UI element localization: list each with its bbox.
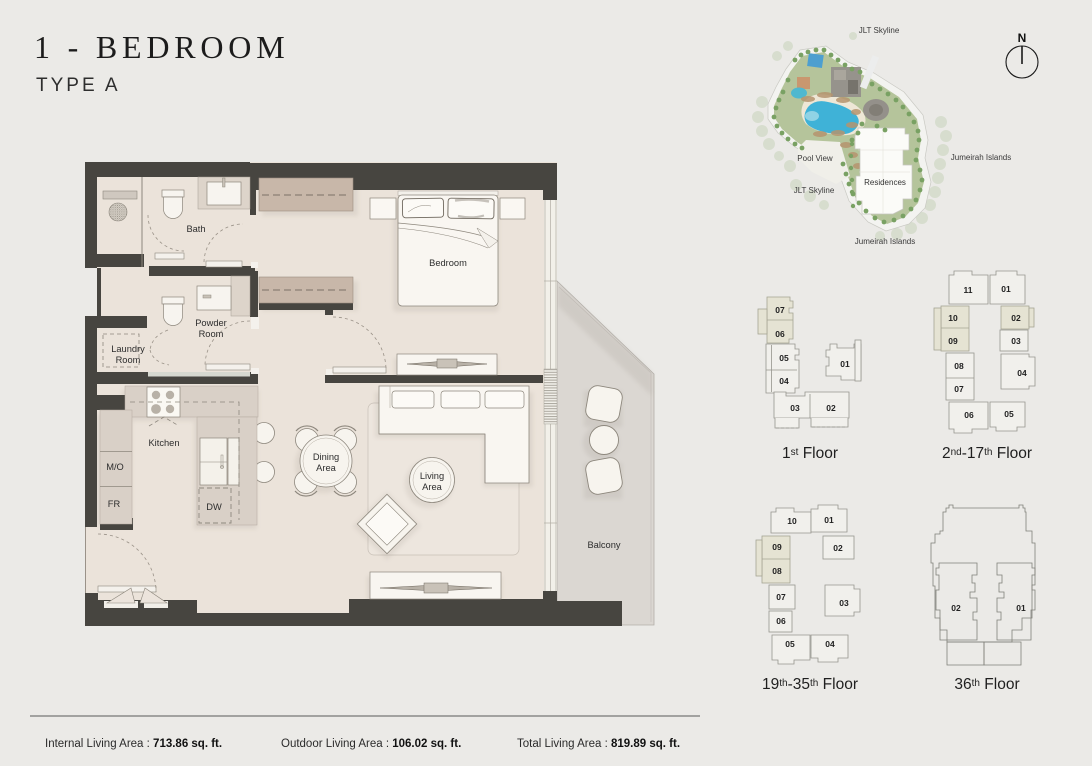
svg-text:10: 10 [787,516,797,526]
svg-text:03: 03 [839,598,849,608]
svg-text:05: 05 [779,353,789,363]
svg-text:Outdoor Living Area : 106.02 s: Outdoor Living Area : 106.02 sq. ft. [281,738,461,750]
svg-text:Powder: Powder [195,318,227,328]
svg-text:06: 06 [776,616,786,626]
svg-text:04: 04 [779,376,789,386]
svg-text:Pool View: Pool View [797,154,833,163]
svg-text:DW: DW [206,502,222,512]
svg-text:02: 02 [951,603,961,613]
svg-text:04: 04 [825,639,835,649]
svg-text:01: 01 [840,359,850,369]
svg-text:19th-35th Floor: 19th-35th Floor [762,676,858,693]
svg-text:Room: Room [199,329,224,339]
svg-text:07: 07 [954,384,964,394]
svg-text:07: 07 [776,592,786,602]
svg-text:01: 01 [1016,603,1026,613]
svg-text:09: 09 [772,542,782,552]
svg-text:09: 09 [948,336,958,346]
svg-text:02: 02 [1011,313,1021,323]
svg-text:Area: Area [422,482,442,492]
svg-text:06: 06 [775,329,785,339]
svg-text:Dining: Dining [313,452,339,462]
svg-text:TYPE A: TYPE A [36,75,121,96]
svg-text:Residences: Residences [864,178,906,187]
svg-text:08: 08 [954,361,964,371]
svg-text:Jumeirah Islands: Jumeirah Islands [855,237,915,246]
svg-text:03: 03 [1011,336,1021,346]
svg-text:07: 07 [775,305,785,315]
svg-text:Kitchen: Kitchen [148,438,179,448]
svg-text:Living: Living [420,471,444,481]
svg-text:1 - BEDROOM: 1 - BEDROOM [34,29,289,65]
svg-text:1st Floor: 1st Floor [782,445,838,462]
svg-text:01: 01 [824,515,834,525]
svg-text:05: 05 [1004,409,1014,419]
svg-text:10: 10 [948,313,958,323]
svg-text:11: 11 [964,285,973,295]
svg-text:FR: FR [108,499,121,509]
svg-text:Room: Room [116,355,141,365]
svg-text:N: N [1018,31,1027,45]
svg-text:05: 05 [785,639,795,649]
svg-text:02: 02 [826,403,836,413]
svg-text:JLT Skyline: JLT Skyline [794,186,835,195]
svg-text:Total Living Area : 819.89 sq.: Total Living Area : 819.89 sq. ft. [517,738,680,750]
svg-text:M/O: M/O [106,462,124,472]
svg-text:01: 01 [1001,284,1011,294]
svg-text:Laundry: Laundry [111,344,145,354]
svg-text:04: 04 [1017,368,1027,378]
svg-text:36th Floor: 36th Floor [954,676,1019,693]
svg-text:Area: Area [316,463,336,473]
svg-text:03: 03 [790,403,800,413]
svg-text:Internal Living Area : 713.86: Internal Living Area : 713.86 sq. ft. [45,738,222,750]
svg-text:02: 02 [833,543,843,553]
svg-text:Bedroom: Bedroom [429,258,467,268]
svg-text:JLT Skyline: JLT Skyline [859,26,900,35]
svg-text:Balcony: Balcony [587,540,620,550]
svg-text:08: 08 [772,566,782,576]
svg-text:Jumeirah Islands: Jumeirah Islands [951,153,1011,162]
svg-text:06: 06 [964,410,974,420]
svg-text:Bath: Bath [186,224,205,234]
